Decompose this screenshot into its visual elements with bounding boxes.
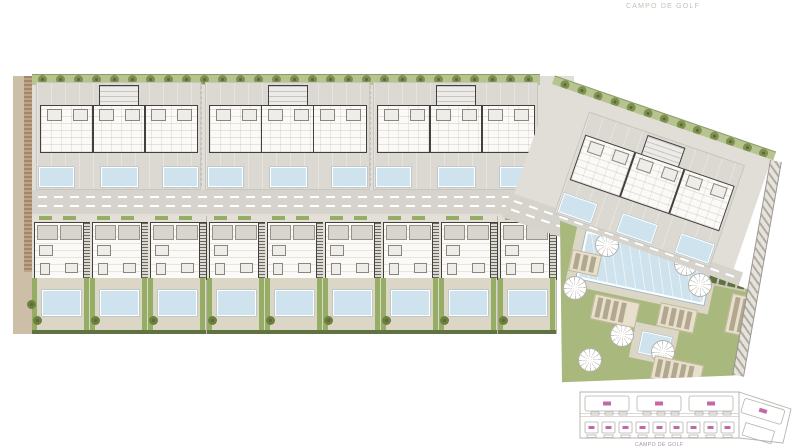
key-pool-tick xyxy=(604,435,613,438)
table-furniture xyxy=(356,263,369,273)
entry-planter xyxy=(97,216,110,220)
hedge xyxy=(323,330,381,334)
driveway-guide xyxy=(370,86,371,186)
road-dash-line xyxy=(38,205,550,207)
sun-lounger xyxy=(580,255,588,272)
townhouse-floorplan xyxy=(209,222,260,280)
lawn-strip-left xyxy=(439,278,444,334)
entry-planter xyxy=(214,216,227,220)
townhouse-floorplan xyxy=(150,222,201,280)
lawn-strip-left xyxy=(90,278,95,334)
roof-patch xyxy=(467,225,489,240)
lawn-strip-right xyxy=(259,278,264,334)
key-block-label xyxy=(655,402,663,406)
entry-planter xyxy=(155,216,168,220)
bed-furniture xyxy=(216,109,231,121)
key-house-label xyxy=(657,426,663,429)
key-rotated-block xyxy=(741,398,786,425)
lawn-strip-right xyxy=(433,278,438,334)
roof-patch xyxy=(270,225,291,240)
hedge xyxy=(381,330,439,334)
sun-lounger xyxy=(655,359,664,378)
garden xyxy=(207,278,265,334)
golf-course-label-top: CAMPO DE GOLF xyxy=(626,3,700,10)
bed-furniture xyxy=(636,158,654,174)
garden-tree-icon xyxy=(382,316,391,325)
entry-planter xyxy=(179,216,192,220)
entry-planter xyxy=(272,216,285,220)
slope-hatch xyxy=(24,76,32,272)
entry-planter xyxy=(388,216,401,220)
sun-lounger xyxy=(588,256,596,273)
garden-tree-icon xyxy=(33,316,42,325)
bed-furniture xyxy=(320,109,335,121)
garden-pool xyxy=(333,290,372,316)
garden-tree-icon xyxy=(149,316,158,325)
apartment-block xyxy=(373,82,538,190)
key-pool-tick xyxy=(587,435,596,438)
entry-planter xyxy=(39,216,52,220)
garden-pool xyxy=(42,290,81,316)
garden xyxy=(90,278,148,334)
apartment-floorplan xyxy=(377,105,535,153)
apartment-block xyxy=(205,82,370,190)
bed-furniture xyxy=(611,149,629,165)
bed-furniture xyxy=(97,245,111,256)
key-pool-tick xyxy=(723,435,732,438)
bed-furniture xyxy=(73,109,88,121)
bed-furniture xyxy=(177,109,192,121)
table-furniture xyxy=(65,263,78,273)
bed-furniture xyxy=(514,109,529,121)
sofa-furniture xyxy=(40,263,50,275)
lawn-strip-right xyxy=(84,278,89,334)
private-pool xyxy=(270,167,307,187)
entry-planter xyxy=(470,216,483,220)
townhouse-plot xyxy=(265,216,324,334)
roof-patch xyxy=(212,225,233,240)
townhouse-plot xyxy=(323,216,382,334)
road-dash-line xyxy=(38,196,550,198)
bed-furniture xyxy=(384,109,399,121)
bed-furniture xyxy=(330,245,344,256)
roof-patch xyxy=(444,225,465,240)
garden-tree-icon xyxy=(208,316,217,325)
key-house-label xyxy=(708,426,714,429)
hedge xyxy=(265,330,323,334)
garden-pool xyxy=(158,290,197,316)
townhouse-floorplan xyxy=(325,222,376,280)
private-pool xyxy=(332,167,367,187)
roof-patch xyxy=(37,225,58,240)
sun-lounger xyxy=(618,302,627,323)
private-pool xyxy=(438,167,475,187)
roof-patch xyxy=(95,225,116,240)
retaining-strip-left xyxy=(13,76,32,334)
wall-partition xyxy=(92,106,94,152)
sun-lounger xyxy=(662,360,671,379)
bed-furniture xyxy=(346,109,361,121)
wall-partition xyxy=(261,106,263,152)
wall-partition xyxy=(313,106,315,152)
entry-planter xyxy=(354,216,367,220)
key-pool-tick xyxy=(621,435,630,438)
key-house-label xyxy=(691,426,697,429)
wall-partition xyxy=(429,106,431,152)
sofa-furniture xyxy=(331,263,341,275)
bed-furniture xyxy=(436,109,451,121)
townhouse-floorplan xyxy=(267,222,318,280)
roof-patch xyxy=(351,225,373,240)
lawn-strip-right xyxy=(375,278,380,334)
bed-furniture xyxy=(99,109,114,121)
bed-furniture xyxy=(294,109,309,121)
table-furniture xyxy=(298,263,311,273)
key-block-label xyxy=(603,402,611,406)
wall-partition xyxy=(144,106,146,152)
sofa-furniture xyxy=(156,263,166,275)
hedge xyxy=(207,330,265,334)
sofa-furniture xyxy=(389,263,399,275)
bed-furniture xyxy=(151,109,166,121)
bed-furniture xyxy=(268,109,283,121)
sofa-furniture xyxy=(215,263,225,275)
sofa-furniture xyxy=(447,263,457,275)
roof-patch xyxy=(118,225,140,240)
key-plan-caption: CAMPO DE GOLF xyxy=(635,442,683,448)
hedge xyxy=(148,330,206,334)
key-block-label xyxy=(707,402,715,406)
apartment-block xyxy=(36,82,201,190)
garden-pool xyxy=(100,290,139,316)
palm-tree-icon xyxy=(579,349,601,371)
entry-planter xyxy=(238,216,251,220)
table-furniture xyxy=(123,263,136,273)
roof-patch xyxy=(60,225,82,240)
private-pool xyxy=(39,167,74,187)
lawn-strip-right xyxy=(142,278,147,334)
garden xyxy=(148,278,206,334)
townhouse-floorplan xyxy=(92,222,143,280)
roof-patch xyxy=(293,225,315,240)
garden-tree-icon xyxy=(324,316,333,325)
garden-pool xyxy=(391,290,430,316)
lawn-strip-left xyxy=(148,278,153,334)
lawn-strip-left xyxy=(323,278,328,334)
entry-planter xyxy=(446,216,459,220)
lawn-strip-right xyxy=(200,278,205,334)
bed-furniture xyxy=(47,109,62,121)
key-house-label xyxy=(674,426,680,429)
roof-patch xyxy=(176,225,198,240)
lawn-strip-left xyxy=(381,278,386,334)
townhouse-plot xyxy=(32,216,91,334)
entry-planter xyxy=(330,216,343,220)
townhouse-plot xyxy=(90,216,149,334)
lounger-pad xyxy=(590,294,640,329)
garden xyxy=(32,278,90,334)
bed-furniture xyxy=(488,109,503,121)
tree-icon xyxy=(27,300,36,309)
garden xyxy=(323,278,381,334)
lawn-strip-right xyxy=(317,278,322,334)
key-house-label xyxy=(725,426,731,429)
townhouse-plot xyxy=(207,216,266,334)
bed-furniture xyxy=(388,245,402,256)
bed-furniture xyxy=(710,183,728,199)
road xyxy=(32,190,556,214)
sun-lounger xyxy=(668,308,677,327)
key-pool-tick xyxy=(689,435,698,438)
garden xyxy=(265,278,323,334)
sun-lounger xyxy=(676,309,685,328)
bed-furniture xyxy=(587,141,605,157)
palm-tree-icon xyxy=(564,277,586,299)
bed-furniture xyxy=(446,245,460,256)
key-pool-tick xyxy=(672,435,681,438)
key-pool-tick xyxy=(706,435,715,438)
garden-pool xyxy=(275,290,314,316)
lawn-strip-left xyxy=(265,278,270,334)
garden xyxy=(381,278,439,334)
sun-lounger xyxy=(573,253,581,270)
table-furniture xyxy=(414,263,427,273)
palm-tree-icon xyxy=(689,274,711,296)
sun-lounger xyxy=(660,306,669,325)
table-furniture xyxy=(472,263,485,273)
apartment-floorplan xyxy=(40,105,198,153)
hedge xyxy=(32,330,90,334)
key-pool-tick xyxy=(655,435,664,438)
key-pool-tick xyxy=(638,435,647,438)
key-house-label xyxy=(589,426,595,429)
key-plan: CAMPO DE GOLF xyxy=(578,386,796,448)
bed-furniture xyxy=(125,109,140,121)
bed-furniture xyxy=(685,175,703,191)
roof-patch xyxy=(153,225,174,240)
key-house-label xyxy=(640,426,646,429)
bed-furniture xyxy=(214,245,228,256)
table-furniture xyxy=(240,263,253,273)
bed-furniture xyxy=(242,109,257,121)
bed-furniture xyxy=(39,245,53,256)
bed-furniture xyxy=(660,166,678,182)
garden-tree-icon xyxy=(440,316,449,325)
private-pool xyxy=(376,167,411,187)
hedge xyxy=(90,330,148,334)
roof-patch xyxy=(328,225,349,240)
key-house-label xyxy=(606,426,612,429)
driveway-guide xyxy=(201,86,202,186)
site-plan-canvas: CAMPO DE GOLF CAMPO DE GOLF xyxy=(0,0,796,448)
entry-planter xyxy=(121,216,134,220)
garden-tree-icon xyxy=(91,316,100,325)
entry-planter xyxy=(296,216,309,220)
entry-planter xyxy=(63,216,76,220)
townhouse-plot xyxy=(148,216,207,334)
sun-lounger xyxy=(684,311,693,330)
bed-furniture xyxy=(272,245,286,256)
private-pool xyxy=(163,167,198,187)
private-pool xyxy=(208,167,243,187)
bed-furniture xyxy=(155,245,169,256)
key-house-label xyxy=(623,426,629,429)
townhouse-floorplan xyxy=(441,222,492,280)
apartment-floorplan xyxy=(209,105,367,153)
garden-tree-icon xyxy=(266,316,275,325)
garden-pool xyxy=(217,290,256,316)
roof-patch xyxy=(386,225,407,240)
sofa-furniture xyxy=(98,263,108,275)
townhouse-plot xyxy=(381,216,440,334)
roof-patch xyxy=(409,225,431,240)
roof-patch xyxy=(235,225,257,240)
sofa-furniture xyxy=(273,263,283,275)
townhouse-floorplan xyxy=(34,222,85,280)
bed-furniture xyxy=(410,109,425,121)
lawn-strip-left xyxy=(207,278,212,334)
private-pool xyxy=(101,167,138,187)
townhouse-floorplan xyxy=(383,222,434,280)
entry-planter xyxy=(412,216,425,220)
table-furniture xyxy=(181,263,194,273)
wall-partition xyxy=(481,106,483,152)
bed-furniture xyxy=(462,109,477,121)
